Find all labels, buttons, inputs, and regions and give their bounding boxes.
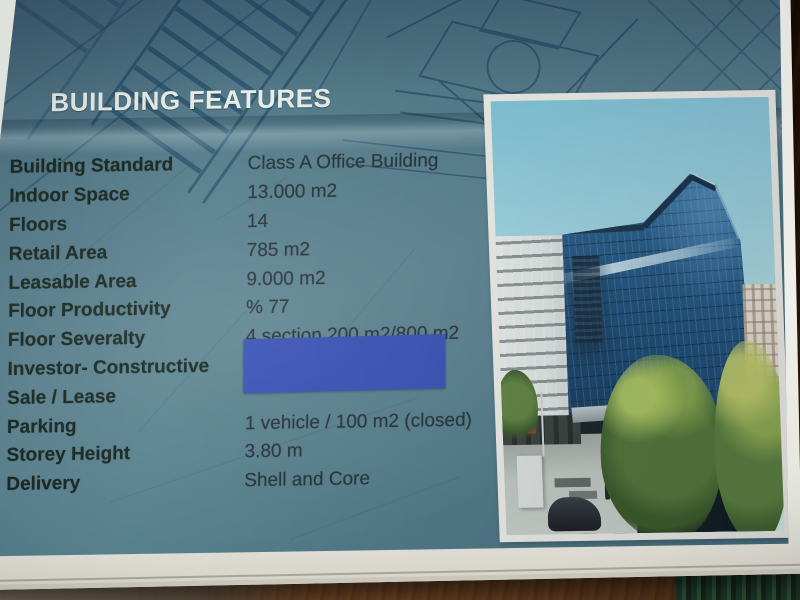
row-value: 785 m2 — [247, 236, 475, 262]
redaction-box — [243, 334, 445, 393]
row-value: 9.000 m2 — [246, 265, 474, 291]
row-label: Storey Height — [0, 442, 244, 468]
row-value: 14 — [247, 208, 475, 234]
page-title: BUILDING FEATURES — [50, 83, 332, 118]
building-photo — [483, 90, 788, 542]
features-rows: Building StandardClass A Office Building… — [0, 147, 476, 500]
row-label: Building Standard — [4, 154, 248, 180]
row-label: Investor- Constructive — [1, 355, 245, 381]
row-value: % 77 — [246, 294, 474, 320]
row-value: 1 vehicle / 100 m2 (closed) — [245, 409, 473, 435]
table-row: DeliveryShell and Core — [0, 463, 472, 499]
row-value: Shell and Core — [244, 467, 472, 493]
row-label: Leasable Area — [2, 269, 246, 295]
row-label: Delivery — [0, 470, 244, 496]
photo-color-wash — [491, 97, 785, 535]
row-label: Retail Area — [3, 240, 247, 266]
photographed-brochure-scene: BUILDING FEATURES Building StandardClass… — [0, 0, 800, 600]
building-photo-image — [491, 97, 785, 535]
row-label: Indoor Space — [3, 182, 247, 208]
row-value: Class A Office Building — [247, 150, 475, 176]
row-label: Sale / Lease — [1, 384, 245, 410]
row-label: Floor Productivity — [2, 298, 246, 324]
brochure-page: BUILDING FEATURES Building StandardClass… — [0, 0, 788, 556]
row-value: 13.000 m2 — [247, 179, 475, 205]
row-label: Floor Severalty — [2, 326, 246, 352]
row-value: 3.80 m — [244, 438, 472, 464]
row-label: Floors — [3, 211, 247, 237]
row-label: Parking — [1, 413, 245, 439]
